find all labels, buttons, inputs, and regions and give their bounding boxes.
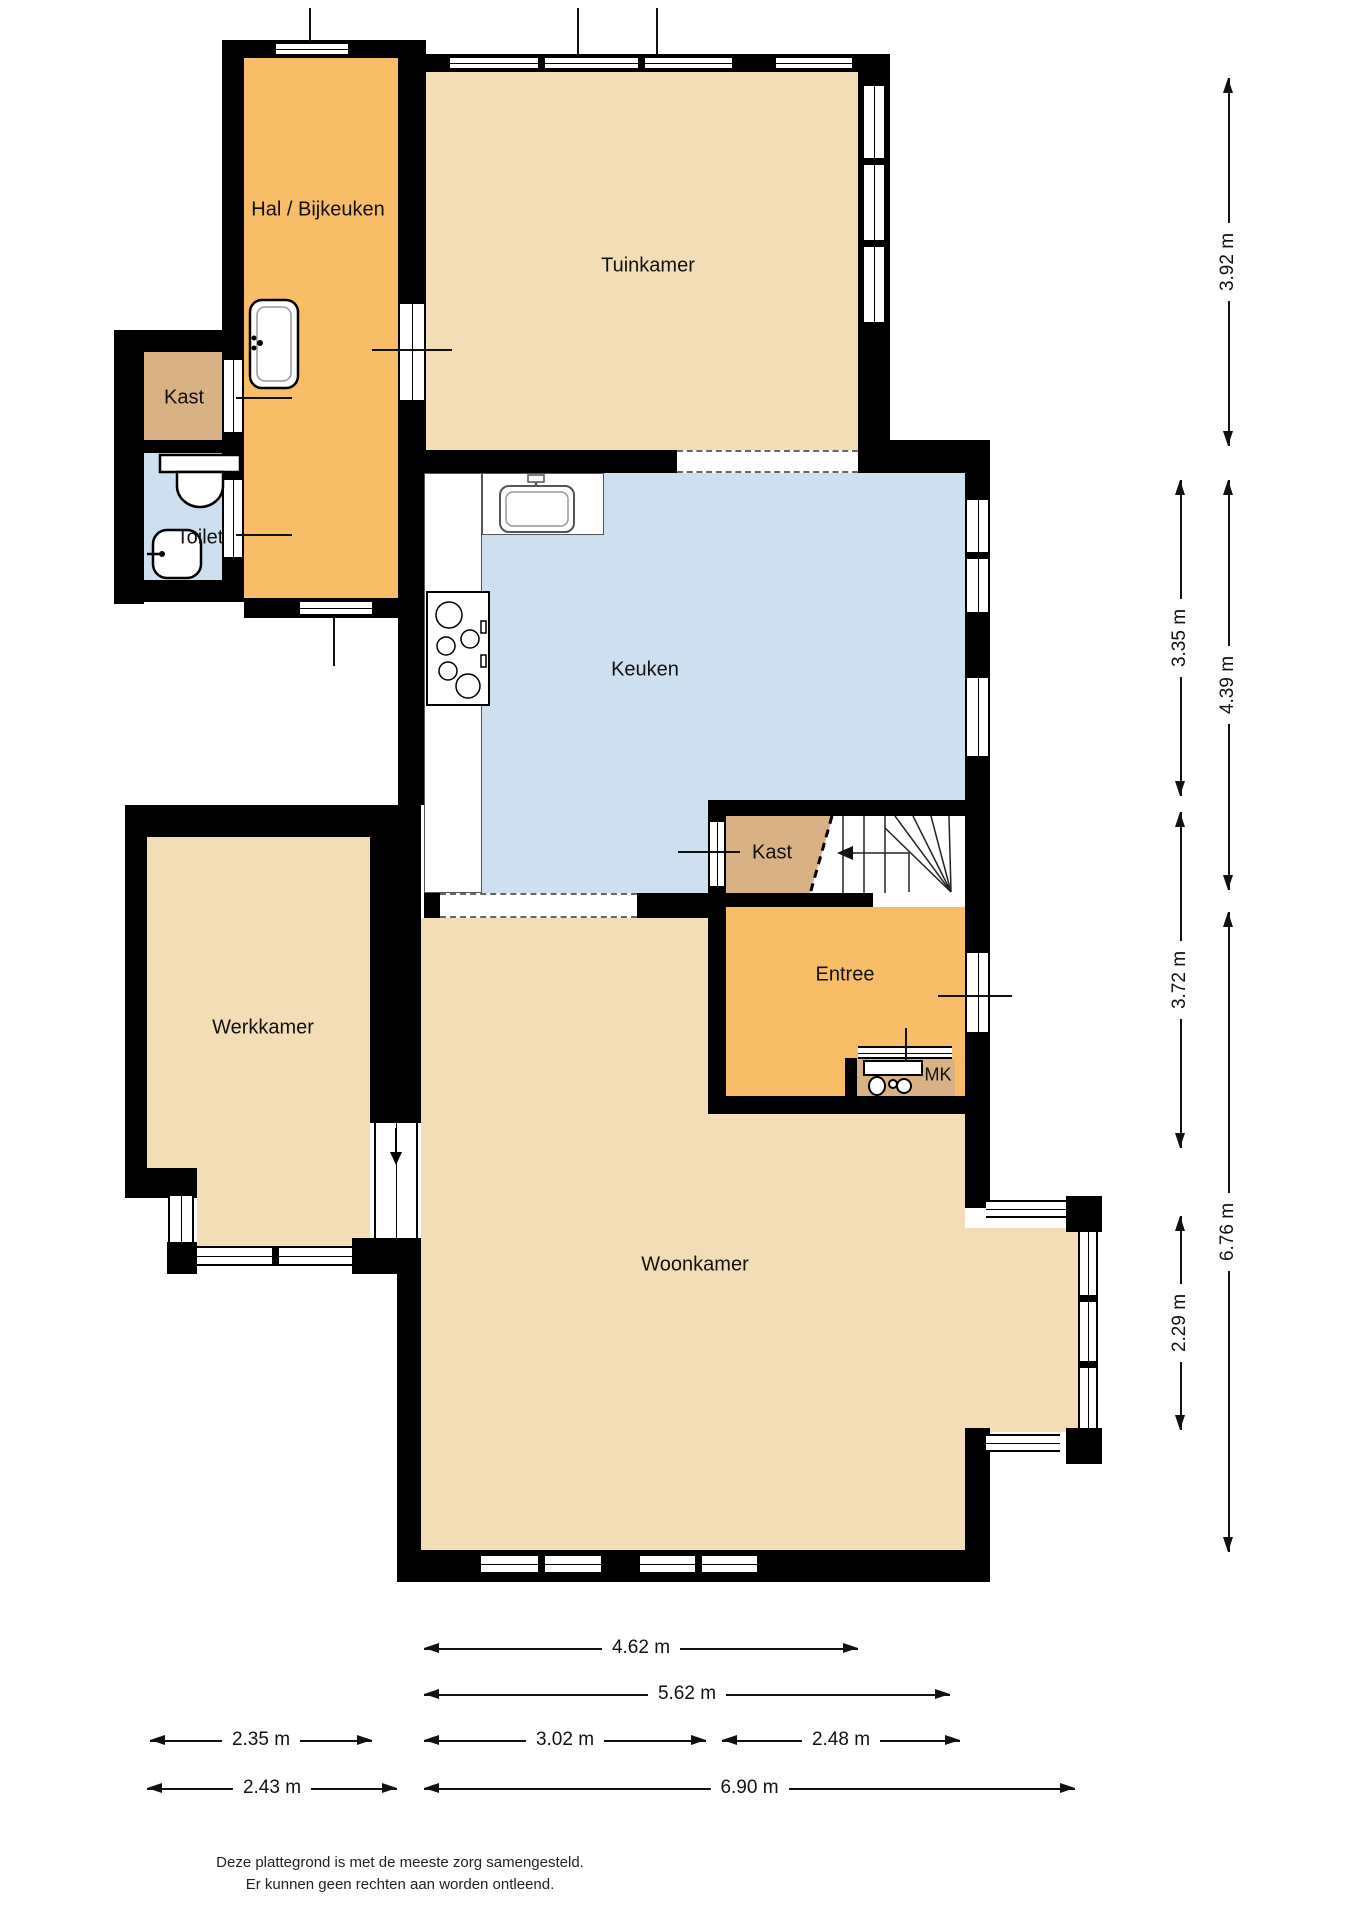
dimension-erker-height: 2.29 m bbox=[1170, 1216, 1190, 1430]
kitchen-sink-icon bbox=[492, 474, 588, 538]
window-erker-right bbox=[1078, 1232, 1098, 1428]
dimension-werkkamer-width: 2.35 m bbox=[150, 1730, 372, 1750]
dimension-tick bbox=[678, 851, 740, 853]
wall bbox=[1066, 1196, 1102, 1232]
sink-icon bbox=[246, 294, 302, 394]
door-hal-tuinkamer bbox=[398, 304, 426, 400]
window-werkkamer-left bbox=[168, 1196, 194, 1242]
disclaimer-line-2: Er kunnen geen rechten aan worden ontlee… bbox=[100, 1876, 700, 1893]
wall bbox=[708, 893, 873, 907]
window-mullion bbox=[862, 240, 886, 247]
wall bbox=[125, 805, 147, 1168]
dimension-woonkamer-height: 6.76 m bbox=[1218, 912, 1238, 1552]
dimension-label: 2.43 m bbox=[233, 1776, 311, 1800]
dimension-woonkamer-width: 6.90 m bbox=[424, 1778, 1075, 1798]
dimension-label: 3.35 m bbox=[1168, 599, 1192, 677]
open-connection-tuinkamer-keuken bbox=[677, 450, 858, 473]
wall bbox=[397, 1238, 421, 1582]
dimension-label: 3.72 m bbox=[1168, 941, 1192, 1019]
window-erker-bottom bbox=[986, 1434, 1060, 1452]
dimension-keuken-trap-height: 4.39 m bbox=[1218, 480, 1238, 890]
dimension-tick bbox=[577, 8, 579, 54]
window-hal-top bbox=[276, 42, 348, 56]
open-connection-keuken-woonkamer bbox=[440, 893, 637, 918]
wall bbox=[708, 893, 726, 1114]
room-label-meterkast: MK bbox=[925, 1065, 952, 1086]
room-label-kast-hal: Kast bbox=[164, 387, 204, 410]
disclaimer-line-1: Deze plattegrond is met de meeste zorg s… bbox=[100, 1854, 700, 1871]
wall bbox=[708, 1096, 990, 1114]
wall bbox=[114, 330, 144, 604]
wall bbox=[424, 893, 440, 918]
window-tuinkamer-top-2 bbox=[776, 56, 852, 70]
wall bbox=[167, 1242, 197, 1274]
door-kast-trap bbox=[708, 822, 726, 886]
window-mullion bbox=[1078, 1295, 1098, 1302]
window-mullion bbox=[1078, 1361, 1098, 1368]
dimension-tick bbox=[236, 534, 292, 536]
wall bbox=[845, 1058, 857, 1096]
arrow-down-icon bbox=[387, 1126, 405, 1166]
room-label-kast-trap: Kast bbox=[752, 842, 792, 865]
wall bbox=[1066, 1428, 1102, 1464]
dimension-label: 6.76 m bbox=[1216, 1193, 1240, 1271]
dimension-tick bbox=[938, 995, 1012, 997]
dimension-label: 2.29 m bbox=[1168, 1284, 1192, 1362]
stairs-icon bbox=[833, 816, 965, 894]
wall bbox=[637, 893, 708, 918]
meters-icon bbox=[860, 1058, 930, 1098]
window-mullion bbox=[272, 1246, 279, 1266]
window-keuken-right-2 bbox=[965, 678, 990, 756]
dimension-keuken-width: 5.62 m bbox=[424, 1684, 950, 1704]
dimension-keuken-links-width: 3.02 m bbox=[424, 1730, 706, 1750]
dimension-label: 4.39 m bbox=[1216, 646, 1240, 724]
dimension-label: 3.02 m bbox=[526, 1728, 604, 1752]
door-hal-achter bbox=[300, 600, 372, 616]
window-mullion bbox=[538, 54, 545, 72]
floor-plan: Hal / Bijkeuken Tuinkamer Kast Toilet Ke… bbox=[0, 0, 1358, 1920]
toilet-icon bbox=[152, 452, 248, 526]
wall bbox=[426, 450, 677, 473]
dimension-tuinkamer-height: 3.92 m bbox=[1218, 78, 1238, 446]
dimension-label: 6.90 m bbox=[710, 1776, 788, 1800]
dimension-tick bbox=[236, 397, 292, 399]
room-label-tuinkamer: Tuinkamer bbox=[601, 255, 695, 278]
window-mullion bbox=[638, 54, 645, 72]
window-mullion bbox=[862, 158, 886, 165]
wall bbox=[370, 805, 421, 1123]
kast-dashed-edge bbox=[804, 814, 838, 896]
front-door-entree bbox=[965, 953, 990, 1032]
dimension-label: 4.62 m bbox=[602, 1636, 680, 1660]
room-label-keuken: Keuken bbox=[611, 659, 679, 682]
room-werkkamer-lower bbox=[197, 1168, 370, 1246]
window-tuinkamer-top-1 bbox=[450, 56, 732, 70]
room-label-toilet: Toilet bbox=[177, 527, 224, 550]
window-kast-hal bbox=[222, 360, 244, 432]
dimension-entree-height: 3.72 m bbox=[1170, 812, 1190, 1148]
wall bbox=[125, 1168, 197, 1198]
dimension-label: 2.35 m bbox=[222, 1728, 300, 1752]
arrow-left-icon bbox=[837, 846, 853, 860]
wall bbox=[965, 1114, 990, 1208]
dimension-keuken-height: 3.35 m bbox=[1170, 480, 1190, 796]
wall bbox=[708, 800, 990, 816]
dimension-werkkamer-buiten-width: 2.43 m bbox=[147, 1778, 397, 1798]
dimension-tick bbox=[656, 8, 658, 54]
dimension-tick bbox=[309, 8, 311, 42]
window-tuinkamer-right bbox=[862, 86, 886, 322]
room-label-hal: Hal / Bijkeuken bbox=[251, 199, 384, 222]
room-label-woonkamer: Woonkamer bbox=[641, 1254, 748, 1277]
dimension-tuinkamer-width: 4.62 m bbox=[424, 1638, 858, 1658]
window-mullion bbox=[695, 1554, 702, 1574]
dimension-tick bbox=[372, 349, 452, 351]
window-erker-top bbox=[986, 1200, 1066, 1218]
dimension-label: 2.48 m bbox=[802, 1728, 880, 1752]
dimension-label: 5.62 m bbox=[648, 1682, 726, 1706]
window-mullion bbox=[965, 552, 990, 559]
dimension-label: 3.92 m bbox=[1216, 223, 1240, 301]
stove-icon bbox=[426, 591, 492, 707]
wall bbox=[398, 40, 426, 805]
wall bbox=[222, 40, 244, 332]
dimension-tick bbox=[333, 618, 335, 666]
room-woonkamer-erker bbox=[965, 1228, 1078, 1432]
room-werkkamer bbox=[147, 837, 370, 1168]
room-label-entree: Entree bbox=[816, 964, 875, 987]
room-label-werkkamer: Werkkamer bbox=[212, 1017, 314, 1040]
dimension-entree-width: 2.48 m bbox=[722, 1730, 960, 1750]
dimension-tick bbox=[905, 1028, 907, 1060]
window-mullion bbox=[538, 1554, 545, 1574]
